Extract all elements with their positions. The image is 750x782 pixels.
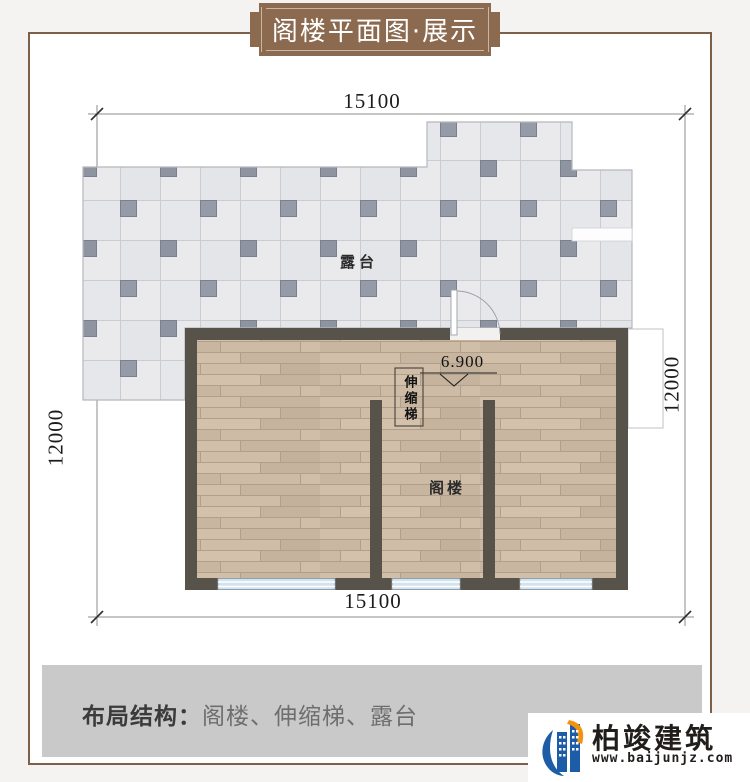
wall-top-left bbox=[185, 328, 450, 340]
wall-top-right bbox=[500, 328, 628, 340]
page: { "banner": { "title": "阁楼平面图·展示" }, "pl… bbox=[0, 0, 750, 782]
dimension-left: 12000 bbox=[44, 402, 69, 474]
layout-structure-value: 阁楼、伸缩梯、露台 bbox=[202, 704, 418, 730]
window-1 bbox=[218, 579, 335, 590]
logo[interactable]: 柏竣建筑 www.baijunjz.com bbox=[528, 713, 750, 782]
door-leaf bbox=[451, 290, 457, 335]
windows bbox=[218, 579, 592, 590]
dimension-right: 12000 bbox=[660, 349, 685, 421]
wall-right bbox=[616, 328, 628, 590]
terrace-step bbox=[572, 228, 632, 241]
dimension-bottom: 15100 bbox=[313, 589, 433, 614]
banner-ribbon: 阁楼平面图·展示 bbox=[250, 3, 500, 56]
building-logo-icon bbox=[538, 716, 588, 778]
page-title: 阁楼平面图·展示 bbox=[250, 3, 500, 56]
label-ladder: 伸缩梯 bbox=[397, 373, 421, 425]
window-2 bbox=[392, 579, 460, 590]
dimension-top: 15100 bbox=[312, 89, 432, 114]
label-elevation: 6.900 bbox=[420, 352, 505, 372]
attic-floor bbox=[190, 333, 623, 583]
layout-structure-label: 布局结构： bbox=[82, 704, 202, 730]
layout-structure-line: 布局结构：阁楼、伸缩梯、露台 bbox=[82, 697, 418, 731]
partition-wall-1 bbox=[370, 400, 382, 578]
side-ledge bbox=[628, 329, 663, 428]
label-attic: 阁楼 bbox=[412, 477, 482, 498]
label-terrace: 露台 bbox=[324, 251, 394, 272]
logo-site-url: www.baijunjz.com bbox=[592, 751, 733, 766]
window-3 bbox=[520, 579, 592, 590]
partition-wall-2 bbox=[483, 400, 495, 578]
wall-left bbox=[185, 328, 197, 590]
